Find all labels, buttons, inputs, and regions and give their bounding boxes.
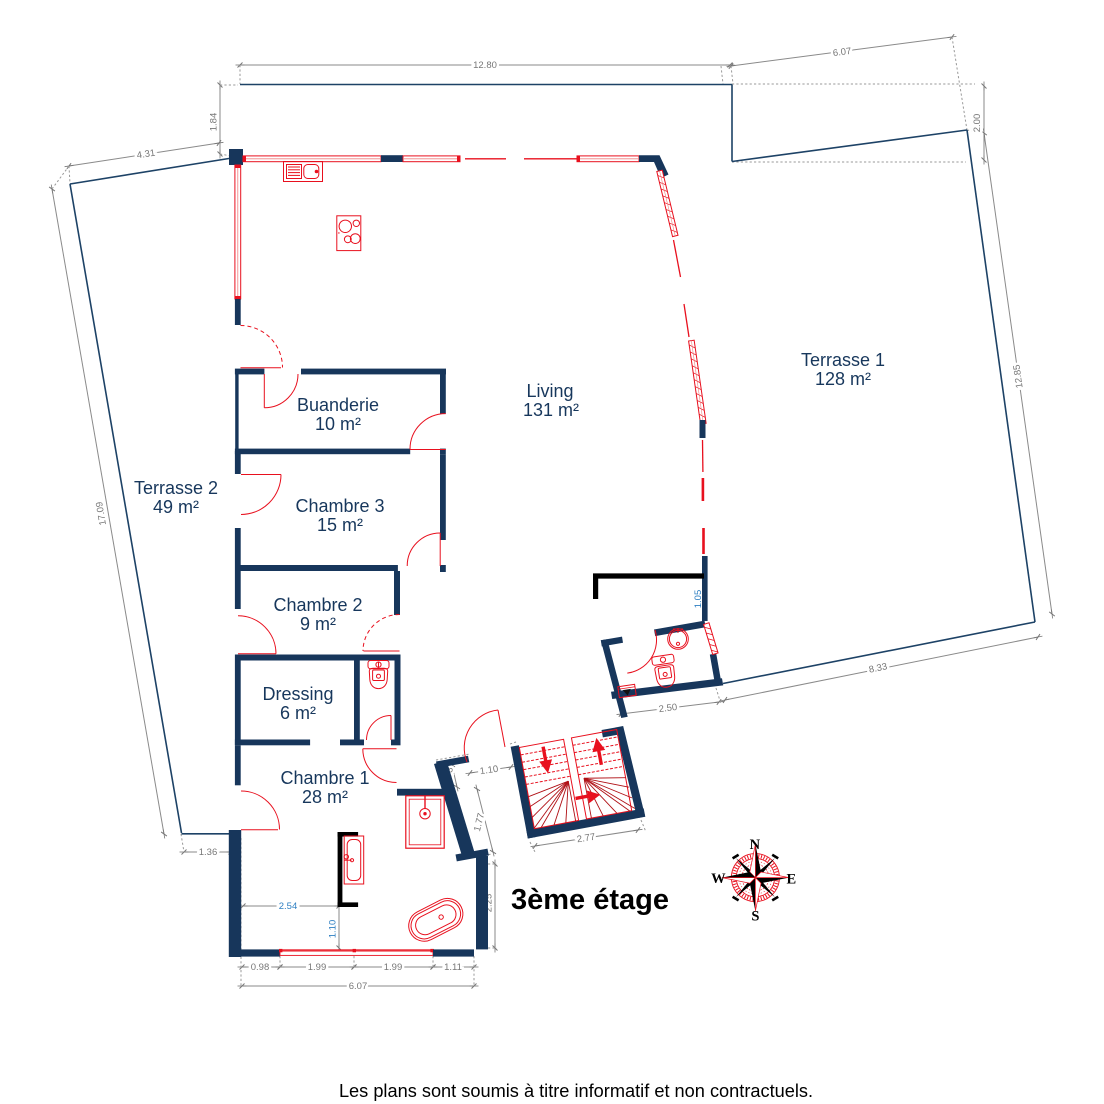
svg-text:9 m²: 9 m² <box>300 614 336 634</box>
svg-text:3ème étage: 3ème étage <box>511 884 669 916</box>
svg-text:1.10: 1.10 <box>328 920 339 939</box>
svg-text:Chambre 1: Chambre 1 <box>280 768 369 788</box>
svg-text:10 m²: 10 m² <box>315 414 361 434</box>
svg-text:Les plans sont soumis à titre: Les plans sont soumis à titre informatif… <box>339 1081 813 1101</box>
svg-text:131 m²: 131 m² <box>523 400 579 420</box>
svg-text:12.80: 12.80 <box>473 60 497 71</box>
svg-text:6.07: 6.07 <box>349 981 368 992</box>
svg-text:W: W <box>711 871 726 887</box>
svg-text:28 m²: 28 m² <box>302 787 348 807</box>
svg-text:Chambre 3: Chambre 3 <box>295 496 384 516</box>
svg-text:15 m²: 15 m² <box>317 515 363 535</box>
svg-text:128 m²: 128 m² <box>815 369 871 389</box>
svg-text:N: N <box>750 837 761 853</box>
svg-text:6 m²: 6 m² <box>280 703 316 723</box>
svg-text:1.11: 1.11 <box>444 962 462 973</box>
svg-text:1.99: 1.99 <box>384 962 403 973</box>
svg-text:Buanderie: Buanderie <box>297 395 379 415</box>
svg-text:2.50: 2.50 <box>658 702 678 715</box>
svg-text:1.99: 1.99 <box>308 962 327 973</box>
svg-text:1.36: 1.36 <box>199 847 218 858</box>
svg-text:2.54: 2.54 <box>279 901 298 912</box>
svg-text:Dressing: Dressing <box>262 684 333 704</box>
svg-text:Living: Living <box>526 381 573 401</box>
svg-text:E: E <box>787 872 797 888</box>
svg-text:Terrasse 1: Terrasse 1 <box>801 350 885 370</box>
svg-text:Chambre 2: Chambre 2 <box>273 595 362 615</box>
svg-text:49 m²: 49 m² <box>153 497 199 517</box>
svg-text:S: S <box>751 909 759 925</box>
svg-text:0.98: 0.98 <box>251 962 270 973</box>
svg-text:2.00: 2.00 <box>972 114 983 133</box>
svg-text:1.84: 1.84 <box>209 113 220 132</box>
svg-text:Terrasse 2: Terrasse 2 <box>134 478 218 498</box>
